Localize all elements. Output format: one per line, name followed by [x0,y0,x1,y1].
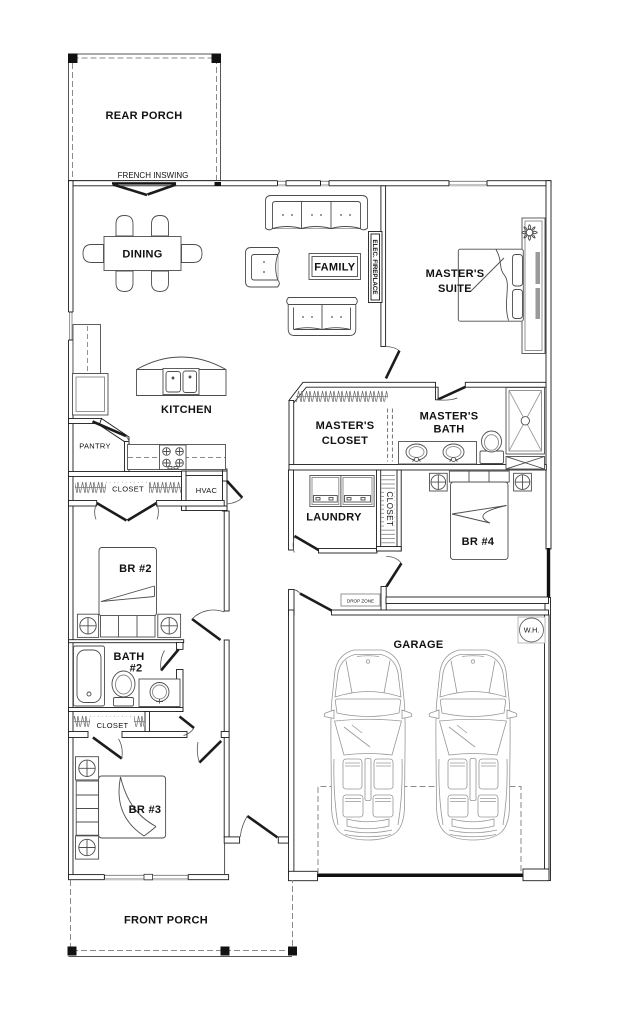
svg-text:CLOSET: CLOSET [112,485,144,494]
svg-text:CLOSET: CLOSET [97,721,129,730]
svg-text:REAR PORCH: REAR PORCH [106,110,183,122]
svg-text:FAMILY: FAMILY [314,262,355,274]
svg-text:PANTRY: PANTRY [79,442,111,451]
svg-text:BATH: BATH [114,651,145,663]
svg-text:FRONT PORCH: FRONT PORCH [124,915,208,927]
svg-text:SUITE: SUITE [438,283,472,295]
svg-text:DINING: DINING [122,249,162,261]
svg-text:CLOSET: CLOSET [385,491,394,526]
svg-text:MASTER'S: MASTER'S [426,268,485,280]
svg-text:W.H.: W.H. [524,626,540,635]
svg-text:BR #4: BR #4 [462,536,495,548]
svg-text:ELEC. FIREPLACE: ELEC. FIREPLACE [371,239,378,294]
svg-text:LAUNDRY: LAUNDRY [306,512,362,524]
svg-text:KITCHEN: KITCHEN [161,404,212,416]
svg-text:FRENCH INSWING: FRENCH INSWING [118,171,189,180]
svg-text:GARAGE: GARAGE [393,639,443,651]
svg-text:DROP ZONE: DROP ZONE [347,598,374,603]
svg-text:BATH: BATH [434,424,465,436]
svg-text:CLOSET: CLOSET [322,435,368,447]
svg-text:BR #3: BR #3 [129,804,162,816]
svg-text:MASTER'S: MASTER'S [420,411,479,423]
svg-text:BR #2: BR #2 [119,563,152,575]
svg-text:MASTER'S: MASTER'S [316,420,375,432]
svg-text:HVAC: HVAC [196,486,218,495]
svg-text:#2: #2 [130,663,143,675]
